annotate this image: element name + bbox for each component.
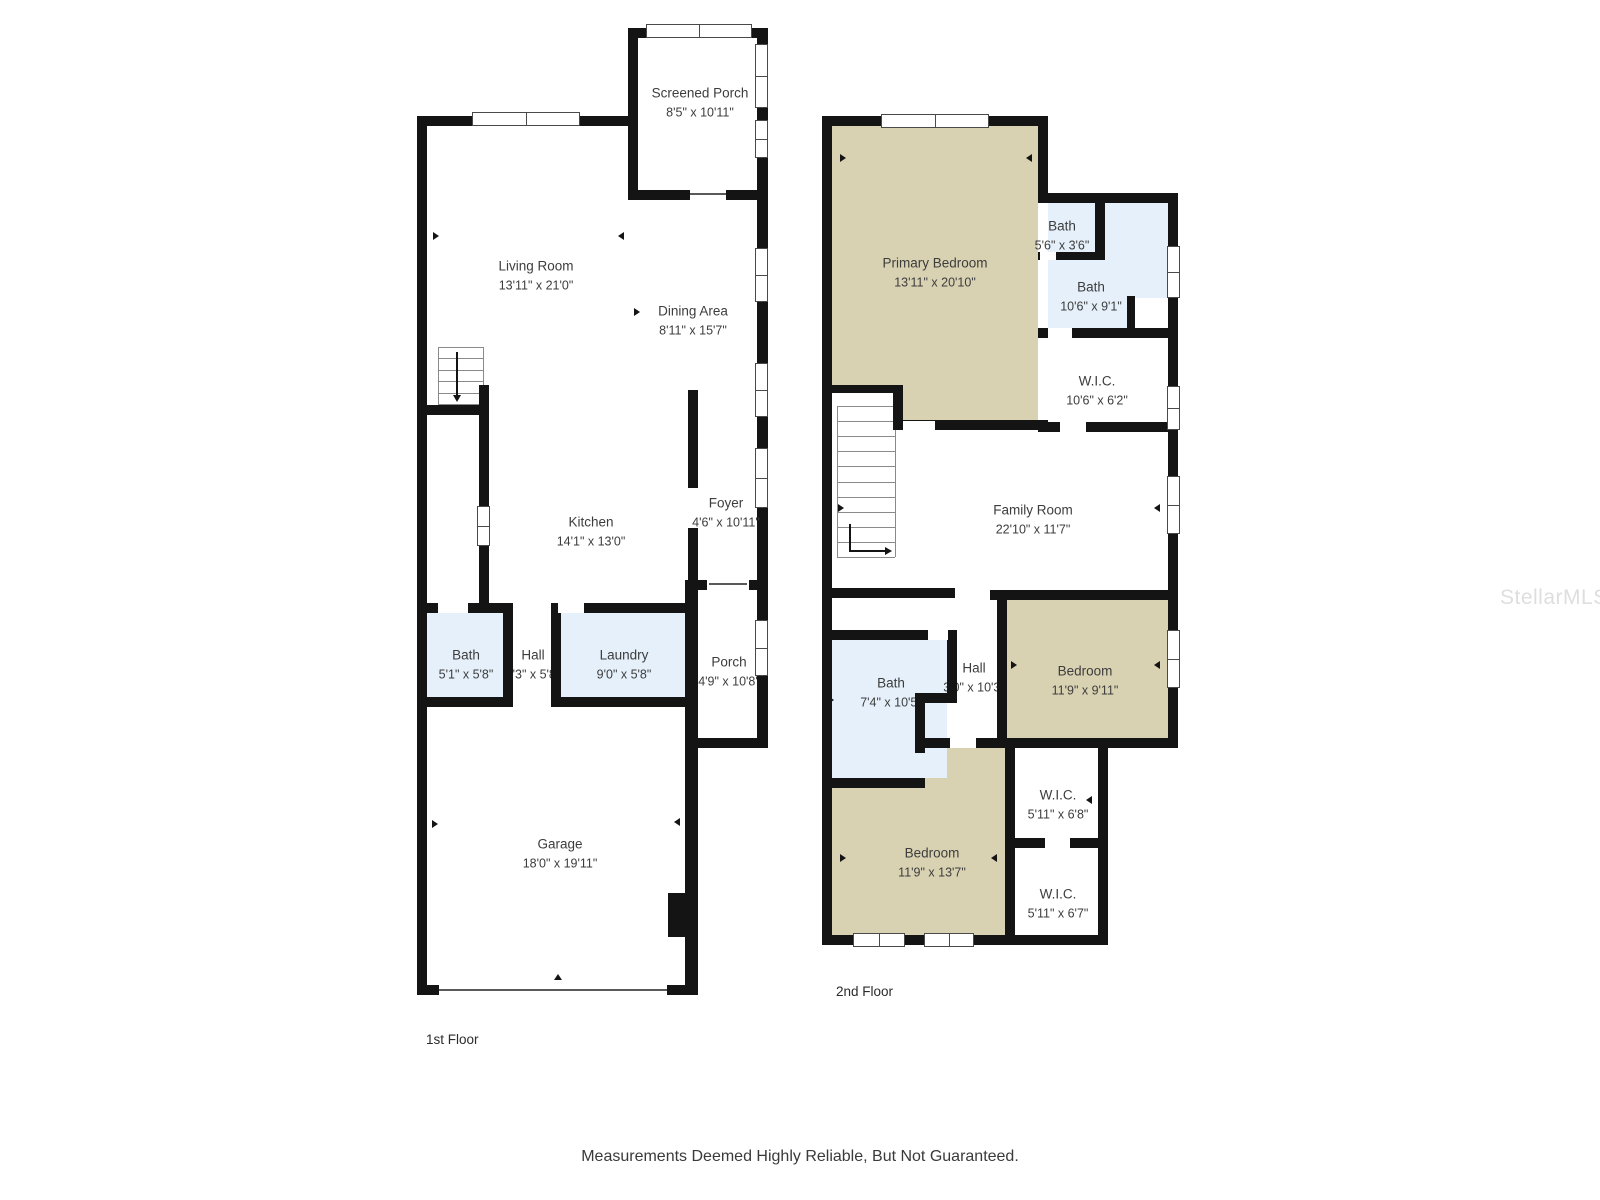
door-opening [950, 738, 976, 748]
dimension-marker [432, 820, 438, 828]
window [755, 363, 768, 417]
room-label-wic-1: W.I.C. 10'6" x 6'2" [1066, 372, 1128, 411]
wall-segment [417, 697, 698, 707]
wall-segment [688, 390, 698, 488]
window [646, 24, 752, 38]
wall-segment [1038, 116, 1048, 203]
floor1-label: 1st Floor [426, 1032, 479, 1047]
wall-segment [997, 590, 1007, 748]
room-name: Porch [698, 653, 760, 673]
room-name: Bath [1035, 217, 1090, 237]
room-name: Laundry [597, 646, 652, 666]
wall-segment [1038, 422, 1178, 432]
wall-segment [479, 545, 489, 603]
room-dims: 5'11" x 6'8" [1028, 806, 1089, 825]
room-label-bath-large: Bath 10'6" x 9'1" [1060, 278, 1122, 317]
door-opening [1060, 422, 1086, 432]
stairwell-area [832, 393, 893, 430]
stair-tread [837, 542, 895, 543]
stair-arrow-stem [456, 352, 458, 396]
window [755, 248, 768, 302]
room-name: Bath [1060, 278, 1122, 298]
wall-segment [915, 703, 925, 753]
window [1167, 386, 1180, 430]
room-dims: 22'10" x 11'7" [993, 521, 1073, 540]
room-name: Primary Bedroom [882, 254, 987, 274]
dimension-marker [991, 854, 997, 862]
door-opening [1048, 328, 1072, 338]
window [881, 114, 989, 128]
dimension-marker [618, 232, 624, 240]
wall-segment [915, 693, 957, 703]
stair-tread [837, 497, 895, 498]
wall-segment [822, 588, 955, 598]
window [472, 112, 580, 126]
wall-segment [668, 893, 685, 937]
room-name: Kitchen [557, 513, 626, 533]
room-name: W.I.C. [1066, 372, 1128, 392]
screen-line [439, 989, 667, 991]
door-opening [1045, 838, 1070, 848]
wall-segment [417, 116, 427, 995]
stair-tread [837, 466, 895, 467]
room-label-wic-3: W.I.C. 5'11" x 6'7" [1028, 885, 1089, 924]
stair-tread [837, 527, 895, 528]
wall-segment [997, 738, 1178, 748]
room-label-family-room: Family Room 22'10" x 11'7" [993, 501, 1073, 540]
wall-segment [1038, 193, 1178, 203]
screen-line [709, 583, 747, 585]
stair-arrow-stem [849, 550, 887, 552]
room-dims: 5'6" x 3'6" [1035, 237, 1090, 256]
wall-segment [417, 985, 439, 995]
stair-tread [438, 358, 483, 359]
room-label-living-room: Living Room 13'11" x 21'0" [498, 257, 573, 296]
room-dims: 13'11" x 20'10" [882, 274, 987, 293]
room-name: Bath [439, 646, 494, 666]
wall-segment [503, 613, 513, 697]
stair-tread [837, 557, 895, 558]
room-label-bedroom-1: Bedroom 11'9" x 9'11" [1052, 662, 1119, 701]
room-dims: 14'1" x 13'0" [557, 533, 626, 552]
stair-tread [438, 370, 483, 371]
wall-segment [822, 116, 832, 945]
window [477, 506, 490, 546]
door-opening [707, 580, 749, 590]
stair-tread [438, 381, 483, 382]
dimension-marker [1026, 154, 1032, 162]
stair-tread [837, 406, 895, 407]
stair-rail [837, 406, 838, 557]
wall-segment [822, 385, 902, 393]
room-label-garage: Garage 18'0" x 19'11" [523, 835, 598, 874]
floor2-label: 2nd Floor [836, 984, 893, 999]
room-label-screened-porch: Screened Porch 8'5" x 10'11" [652, 84, 749, 123]
dimension-marker [838, 504, 844, 512]
dimension-marker [828, 696, 834, 704]
room-name: Bedroom [898, 844, 966, 864]
room-label-bath-1: Bath 5'1" x 5'8" [439, 646, 494, 685]
room-label-kitchen: Kitchen 14'1" x 13'0" [557, 513, 626, 552]
window [924, 933, 974, 947]
wall-segment [688, 738, 768, 748]
stair-tread [837, 512, 895, 513]
room-dims: 18'0" x 19'11" [523, 855, 598, 874]
wall-segment [990, 590, 1178, 600]
room-label-bedroom-2: Bedroom 11'9" x 13'7" [898, 844, 966, 883]
stair-tread [837, 421, 895, 422]
window [853, 933, 905, 947]
room-dims: 11'9" x 9'11" [1052, 682, 1119, 701]
room-dims: 9'0" x 5'8" [597, 666, 652, 685]
screen-line [690, 193, 726, 195]
door-opening [558, 603, 584, 613]
stair-tread [438, 393, 483, 394]
dimension-marker [840, 854, 846, 862]
room-dims: 8'11" x 15'7" [658, 322, 728, 341]
stair-tread [837, 436, 895, 437]
room-label-dining-area: Dining Area 8'11" x 15'7" [658, 302, 728, 341]
room-dims: 7'4" x 10'5" [860, 694, 922, 713]
dimension-marker [840, 154, 846, 162]
door-opening [513, 697, 551, 707]
window [755, 620, 768, 676]
room-name: Bath [860, 674, 922, 694]
window [755, 44, 768, 108]
dimension-marker [554, 974, 562, 980]
watermark: StellarMLS [1500, 586, 1600, 610]
room-name: Screened Porch [652, 84, 749, 104]
wall-segment [1127, 296, 1135, 330]
room-dims: 13'11" x 21'0" [498, 277, 573, 296]
stair-tread [438, 347, 483, 348]
window [755, 120, 768, 158]
stair-arrow-head [885, 547, 892, 555]
door-opening [438, 603, 468, 613]
dimension-marker [634, 308, 640, 316]
window [1167, 630, 1180, 688]
door-opening [513, 603, 551, 613]
wall-segment [479, 408, 489, 508]
room-dims: 5'1" x 5'8" [439, 666, 494, 685]
window [1167, 246, 1180, 298]
room-dims: 4'6" x 10'11" [692, 514, 760, 533]
room-name: W.I.C. [1028, 786, 1089, 806]
room-label-wic-2: W.I.C. 5'11" x 6'8" [1028, 786, 1089, 825]
stair-tread [837, 451, 895, 452]
dimension-marker [1011, 661, 1017, 669]
stair-rail [438, 347, 439, 404]
room-dims: 10'6" x 9'1" [1060, 298, 1122, 317]
door-opening [903, 421, 935, 430]
window [1167, 476, 1180, 534]
room-dims: 5'11" x 6'7" [1028, 905, 1089, 924]
door-opening [690, 190, 726, 200]
floor-plan-canvas: Screened Porch 8'5" x 10'11" Living Room… [0, 0, 1600, 1200]
room-label-bath-2: Bath 7'4" x 10'5" [860, 674, 922, 713]
room-label-foyer: Foyer 4'6" x 10'11" [692, 494, 760, 533]
wall-segment [551, 613, 561, 697]
disclaimer-text: Measurements Deemed Highly Reliable, But… [0, 1148, 1600, 1166]
room-name: Living Room [498, 257, 573, 277]
door-opening [928, 630, 948, 640]
stair-arrow-head [453, 395, 461, 402]
dimension-marker [1154, 504, 1160, 512]
wall-segment [685, 697, 698, 995]
stair-tread [837, 482, 895, 483]
wall-segment [1095, 193, 1105, 260]
room-name: Family Room [993, 501, 1073, 521]
room-label-laundry: Laundry 9'0" x 5'8" [597, 646, 652, 685]
dimension-marker [1154, 661, 1160, 669]
room-name: Garage [523, 835, 598, 855]
room-name: Bedroom [1052, 662, 1119, 682]
room-dims: 4'9" x 10'8" [698, 673, 760, 692]
room-name: W.I.C. [1028, 885, 1089, 905]
room-label-bath-small: Bath 5'6" x 3'6" [1035, 217, 1090, 256]
room-dims: 10'6" x 6'2" [1066, 392, 1128, 411]
wall-segment [893, 385, 903, 430]
wall-segment [667, 985, 695, 995]
room-name: Dining Area [658, 302, 728, 322]
room-name: Foyer [692, 494, 760, 514]
dimension-marker [674, 818, 680, 826]
room-label-porch: Porch 4'9" x 10'8" [698, 653, 760, 692]
toilet-area [1135, 298, 1168, 328]
wall-segment [628, 28, 638, 200]
room-dims: 8'5" x 10'11" [652, 104, 749, 123]
room-dims: 11'9" x 13'7" [898, 864, 966, 883]
dimension-marker [433, 232, 439, 240]
room-label-primary-bedroom: Primary Bedroom 13'11" x 20'10" [882, 254, 987, 293]
stair-arrow-stem [849, 524, 851, 552]
wall-segment [822, 778, 925, 788]
